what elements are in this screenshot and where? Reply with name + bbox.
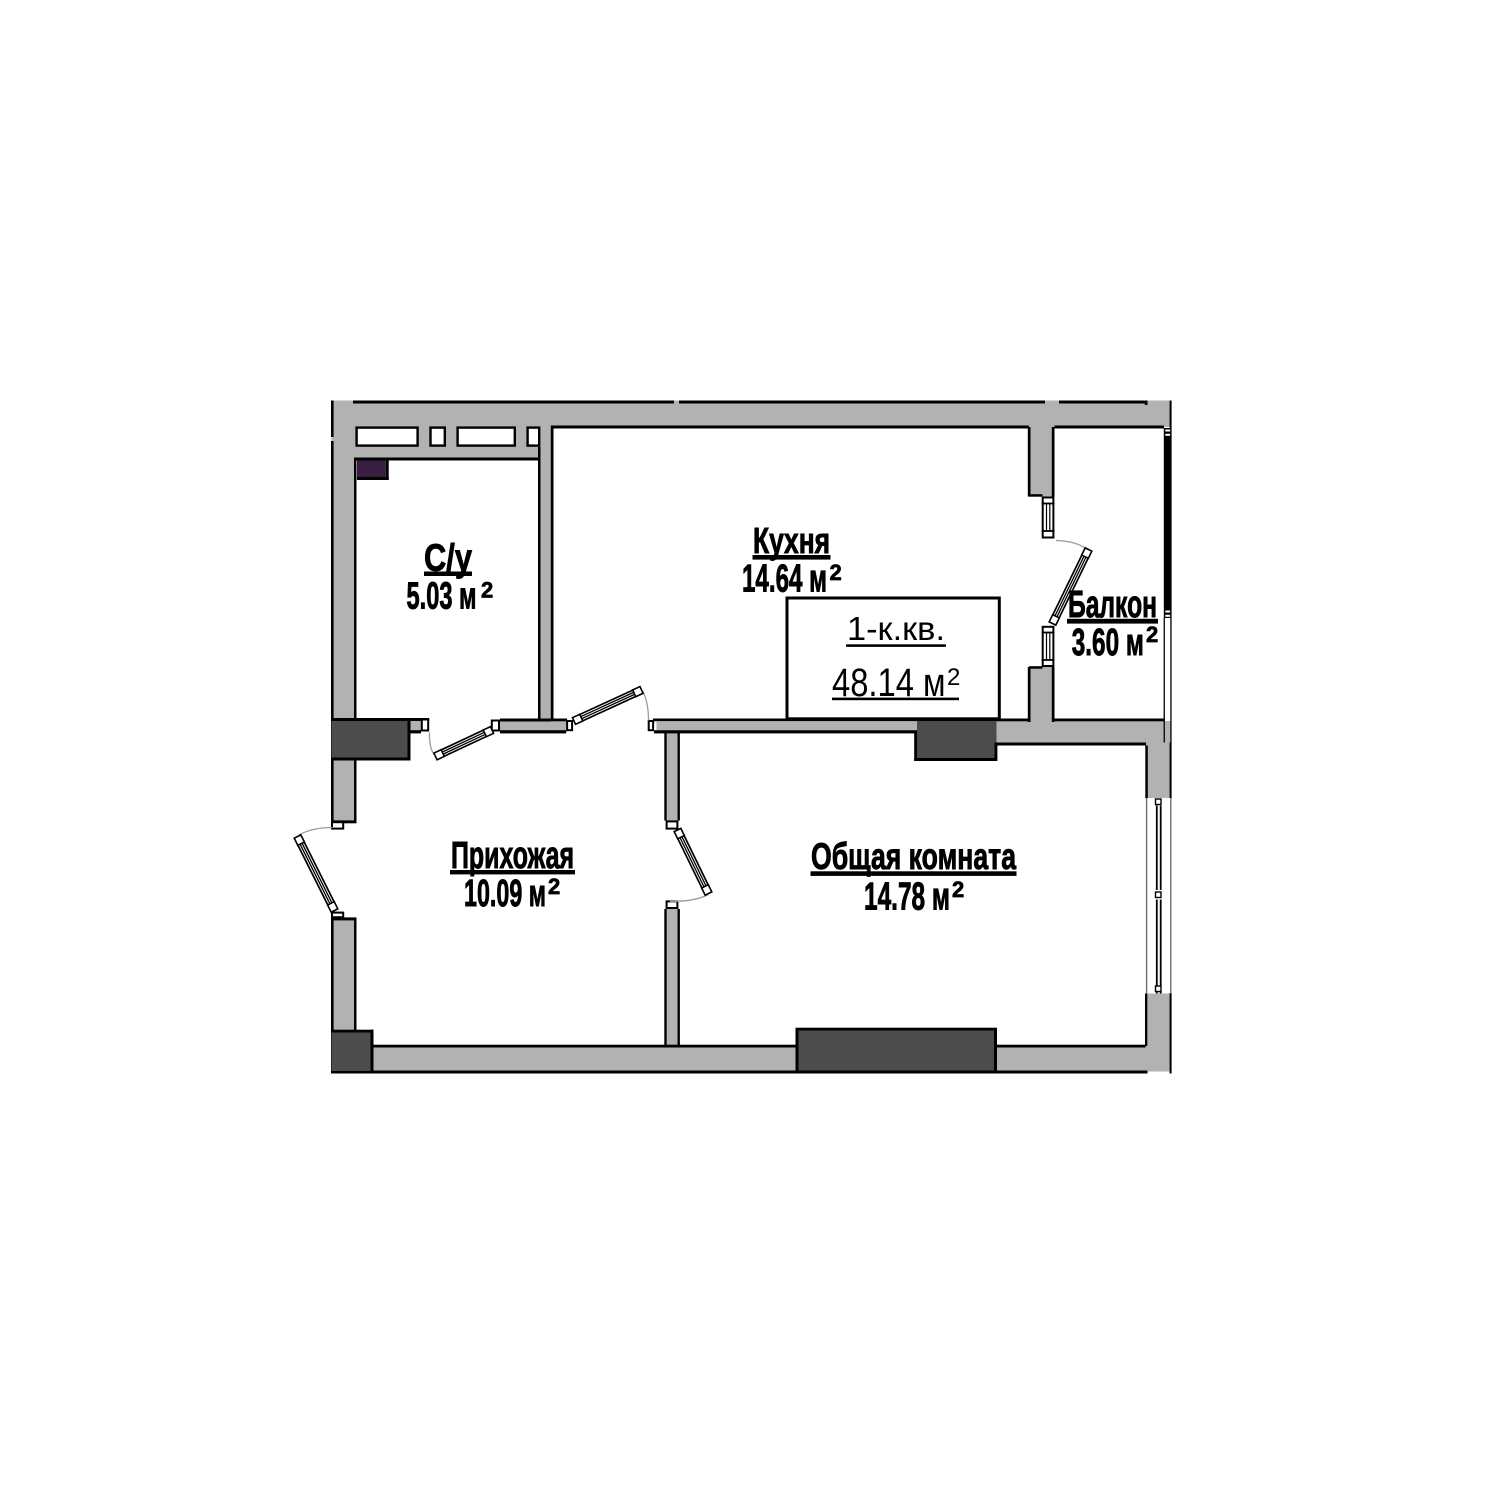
svg-text:2: 2	[1146, 622, 1158, 647]
svg-text:2: 2	[548, 874, 560, 899]
svg-text:14.78 м: 14.78 м	[864, 876, 950, 919]
svg-text:Общая комната: Общая комната	[811, 836, 1016, 877]
svg-text:2: 2	[481, 578, 493, 603]
svg-text:5.03 м: 5.03 м	[407, 576, 477, 618]
svg-text:Кухня: Кухня	[753, 520, 830, 561]
svg-text:14.64 м: 14.64 м	[742, 558, 827, 601]
svg-text:2: 2	[947, 664, 960, 691]
svg-text:1-к.кв.: 1-к.кв.	[847, 610, 945, 647]
svg-text:2: 2	[952, 877, 964, 902]
svg-text:2: 2	[830, 560, 842, 585]
svg-text:3.60 м: 3.60 м	[1072, 622, 1144, 664]
svg-text:10.09 м: 10.09 м	[464, 873, 546, 915]
